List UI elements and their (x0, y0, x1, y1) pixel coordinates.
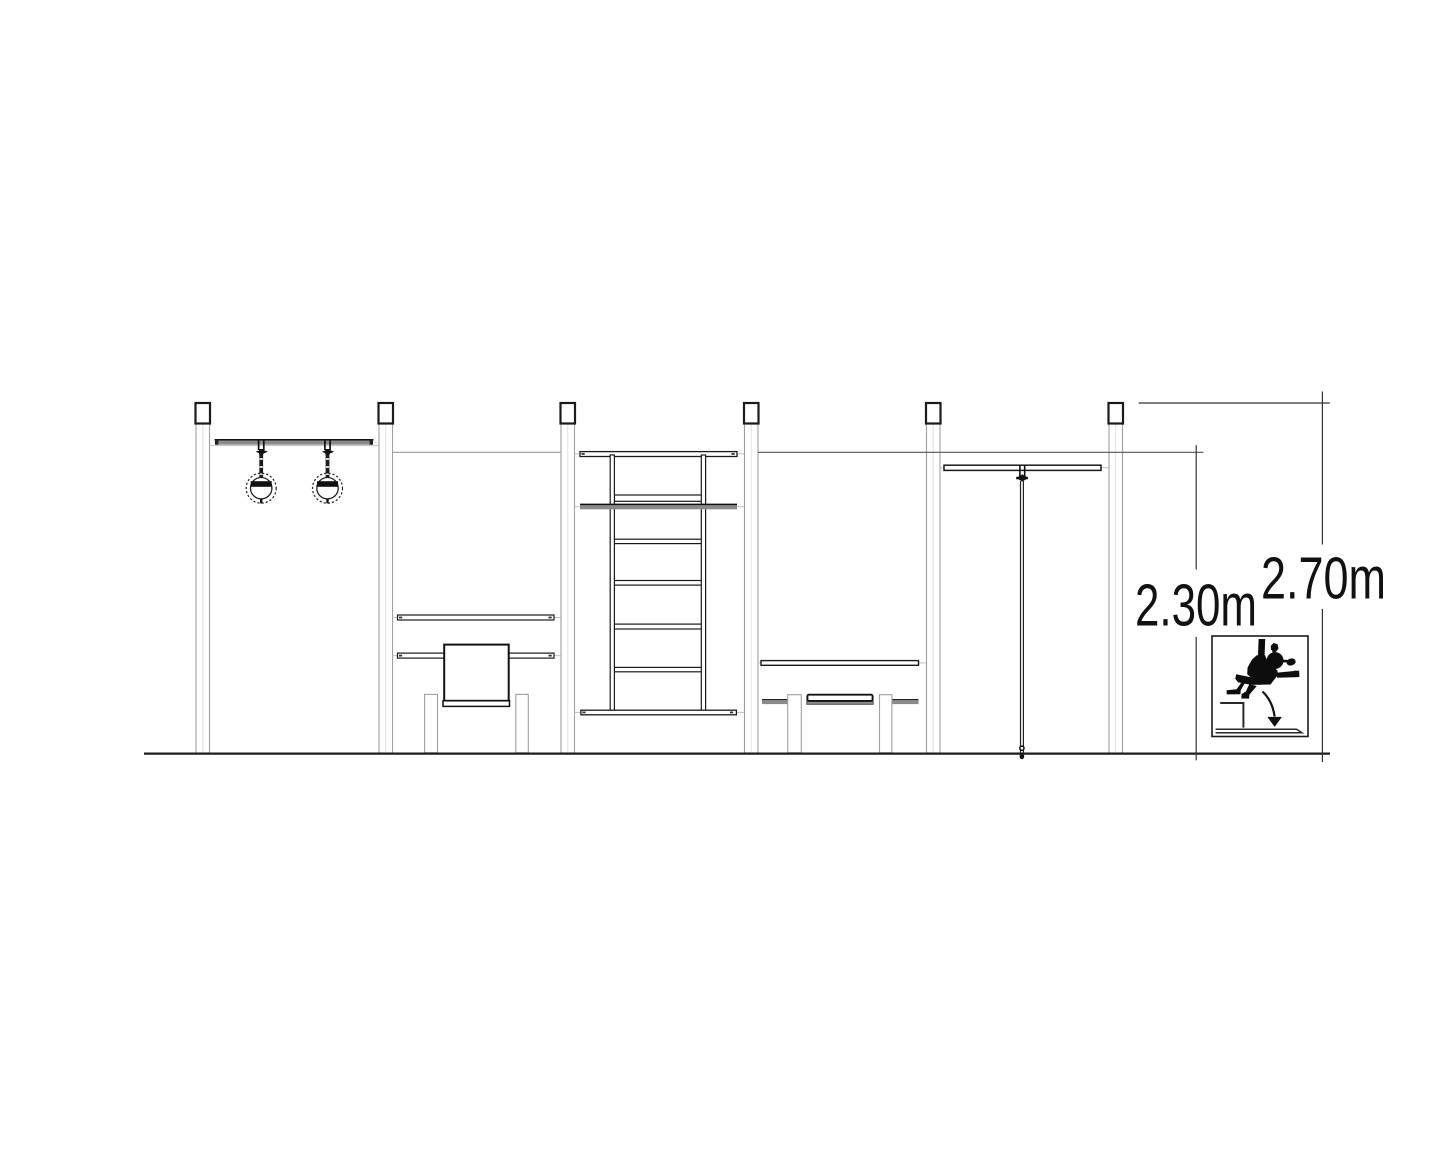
svg-text:2.70m: 2.70m (1261, 546, 1386, 612)
svg-text:2.30m: 2.30m (1135, 573, 1257, 639)
